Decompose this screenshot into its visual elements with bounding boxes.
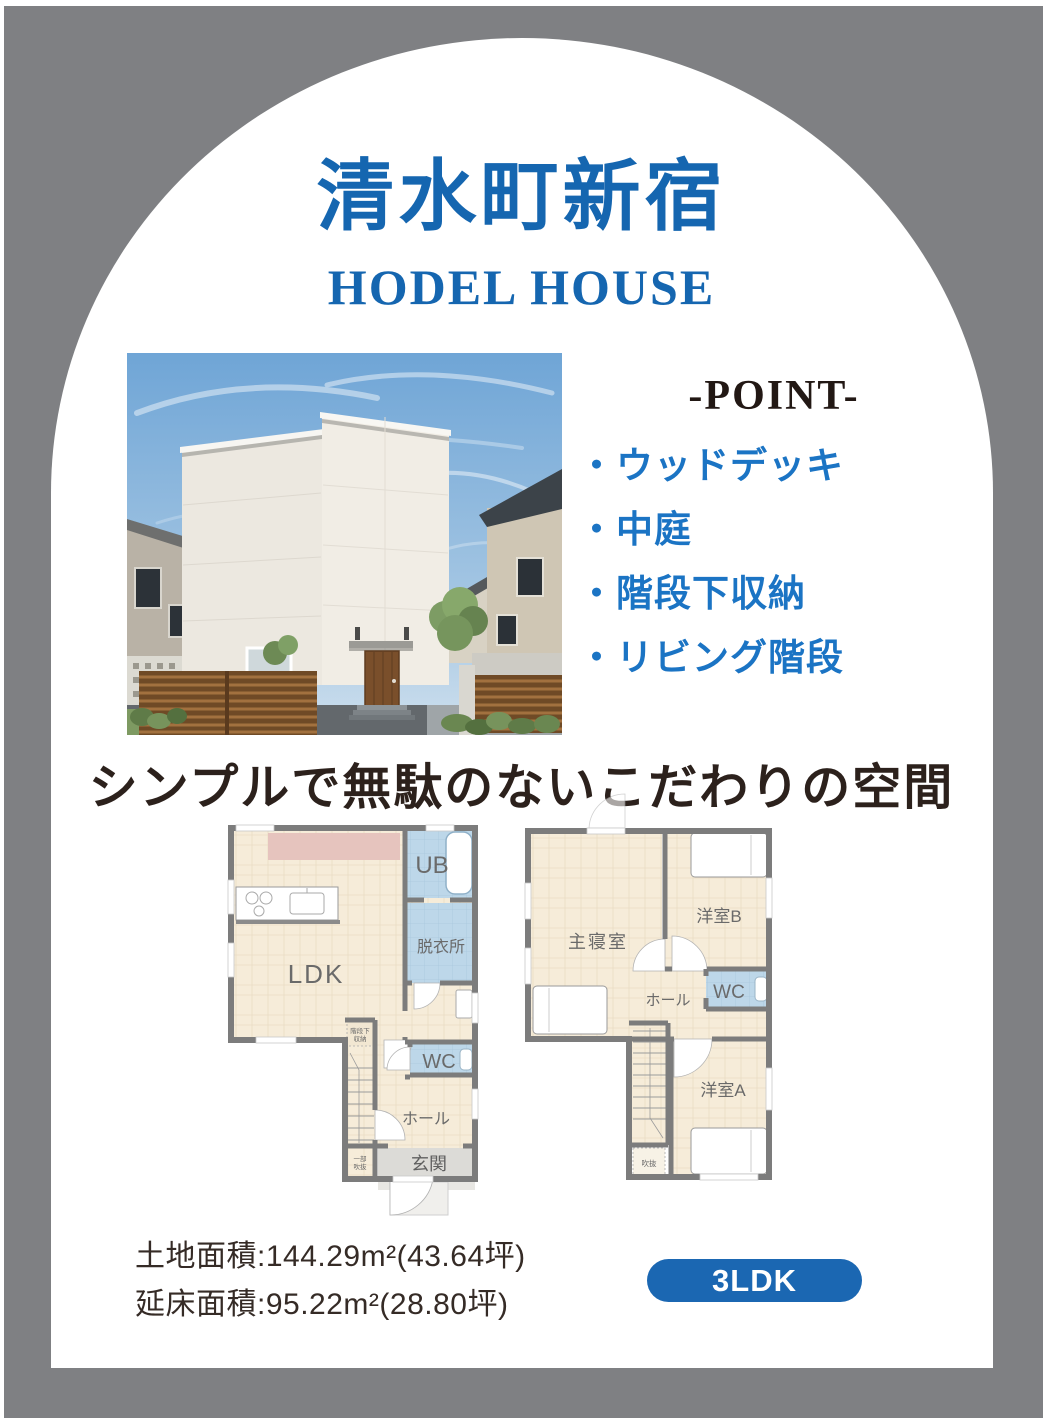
page-subtitle: HODEL HOUSE	[0, 258, 1043, 316]
label-dressing: 脱衣所	[417, 938, 465, 956]
page-title: 清水町新宿	[0, 156, 1043, 238]
page-edge-top	[0, 0, 1043, 6]
main-house	[180, 412, 451, 707]
front-door	[365, 651, 399, 707]
point-item: ・階段下収納	[578, 562, 970, 626]
point-heading: -POINT-	[578, 372, 970, 420]
point-item: ・リビング階段	[578, 626, 970, 690]
label-partial-void-2: 吹抜	[354, 1162, 368, 1171]
label-master: 主寝室	[568, 932, 628, 952]
entry-steps	[349, 705, 415, 720]
floor-plan-2f: 主寝室 洋室B WC ホール 洋室A 吹抜	[525, 828, 772, 1180]
kitchen-area	[268, 833, 400, 860]
land-area-text: 土地面積:144.29m²(43.64坪)	[135, 1231, 526, 1275]
label-ldk: LDK	[288, 959, 345, 989]
toilet-2f	[755, 977, 767, 1001]
label-ub: UB	[415, 852, 448, 879]
point-section: -POINT- ・ウッドデッキ ・中庭 ・階段下収納 ・リビング階段	[578, 372, 970, 690]
label-partial-void-1: 一部	[354, 1154, 368, 1163]
label-under-stair-1: 階段下	[350, 1026, 370, 1035]
floor-plan-1f: LDK UB 脱衣所 WC ホール 玄関 階段下 収納 一部 吹抜	[228, 825, 478, 1220]
label-hall: ホール	[402, 1111, 450, 1128]
floor-area-text: 延床面積:95.22m²(28.80坪)	[135, 1279, 508, 1323]
toilet	[460, 1049, 472, 1070]
kitchen-counter	[236, 887, 340, 924]
catchphrase: シンプルで無駄のないこだわりの空間	[0, 748, 1043, 819]
label-void: 吹抜	[642, 1158, 657, 1168]
label-hall-2f: ホール	[645, 992, 690, 1009]
label-room-a: 洋室A	[700, 1081, 746, 1100]
point-item: ・中庭	[578, 498, 970, 562]
house-photo	[127, 353, 562, 735]
layout-badge: 3LDK	[647, 1259, 862, 1302]
point-item: ・ウッドデッキ	[578, 434, 970, 498]
label-room-b: 洋室B	[696, 907, 741, 926]
bathtub	[446, 832, 472, 894]
label-wc: WC	[422, 1051, 455, 1073]
label-under-stair-2: 収納	[354, 1034, 367, 1043]
vanity-sink	[456, 990, 472, 1018]
label-entrance: 玄関	[411, 1154, 447, 1174]
flyer-page: 清水町新宿 HODEL HOUSE	[0, 0, 1043, 1418]
label-wc-2f: WC	[713, 982, 745, 1003]
point-list: ・ウッドデッキ ・中庭 ・階段下収納 ・リビング階段	[578, 434, 970, 690]
